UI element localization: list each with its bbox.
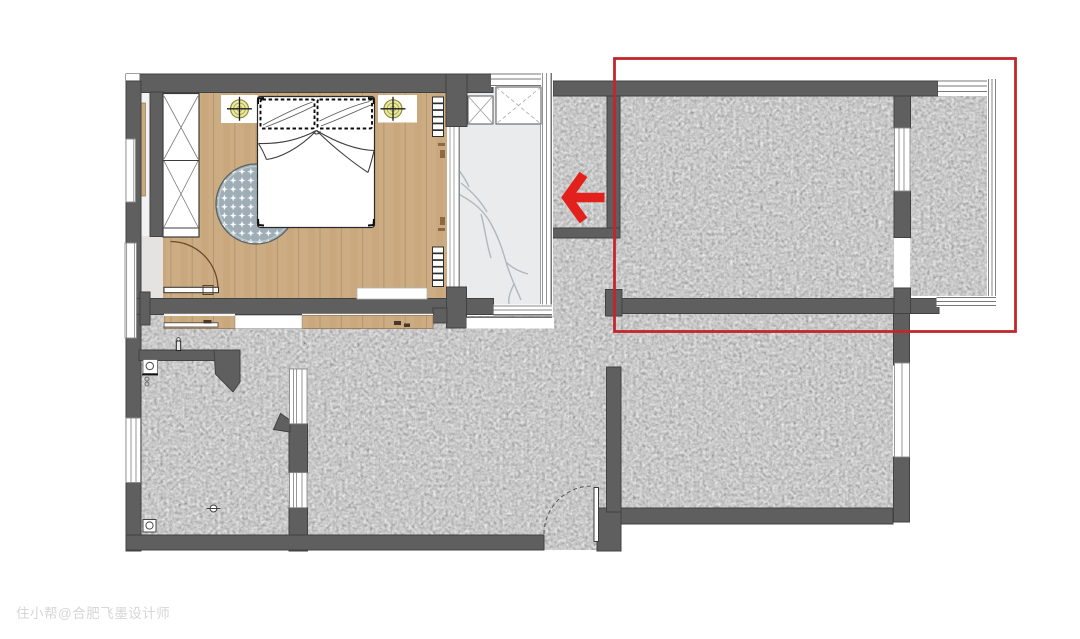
svg-text:住小帮@合肥飞墨设计师: 住小帮@合肥飞墨设计师 [16,606,170,621]
